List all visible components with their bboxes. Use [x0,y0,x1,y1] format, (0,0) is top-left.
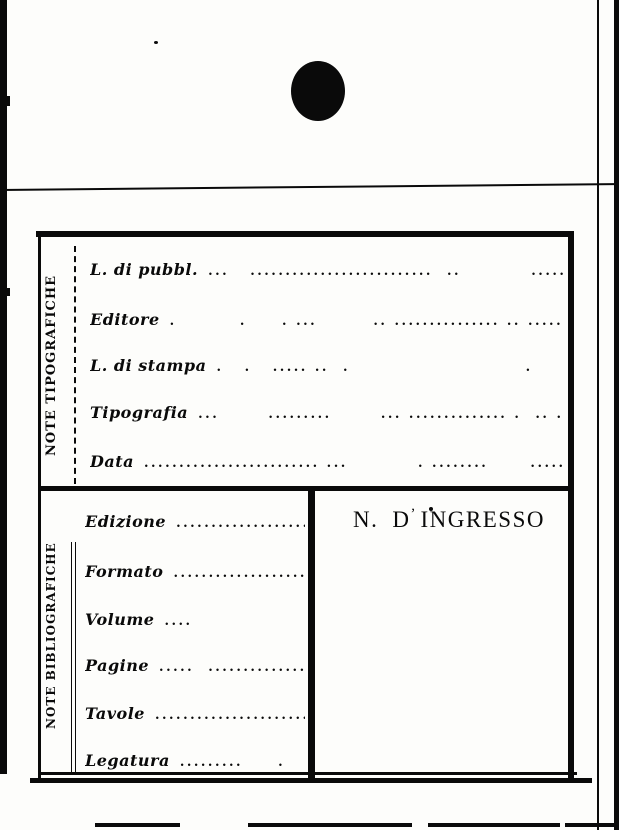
ingresso-box-title: N.D’INGRESSO [338,506,560,538]
dotted-fill-line: .................... [176,516,305,531]
field-row-formato: Formato ..................... [85,562,305,581]
title-separator-double [71,542,76,774]
card-border-bottom [30,778,592,783]
field-label: Edizione [85,512,166,531]
field-label: Tavole [85,704,145,723]
field-label: L. di pubbl. [90,260,198,279]
field-row-pagine: Pagine ..... .............. [85,656,305,675]
field-row-tavole: Tavole ....................... [85,704,305,723]
scan-noise-notch [6,288,10,296]
ingresso-word: INGRESSO [421,507,545,532]
section-title-tipografiche: NOTE TIPOGRAFICHE [44,248,68,482]
field-label: Legatura [85,751,170,770]
scan-edge-bottom-dash [428,823,560,827]
scan-noise-notch [6,96,10,106]
title-separator-dashed [74,246,76,484]
dotted-fill-line: ..................... [173,566,305,581]
field-label: Tipografia [90,403,188,422]
field-label: Editore [90,310,160,329]
dotted-fill-line: . . ..... .. . . [216,360,564,375]
field-label: L. di stampa [90,356,206,375]
card-fold-line [597,0,599,830]
field-row-luogo-stampa: L. di stampa . . ..... .. . . [90,356,564,375]
dotted-fill-line: ..... .............. [159,660,305,675]
dotted-fill-line: . . . ... .. ............... .. ...... [170,314,564,329]
horizontal-rule [0,183,619,191]
dotted-fill-line: ... .......................... .. ...... [208,264,564,279]
scan-edge-right-bar [614,0,619,830]
ingresso-d: D [392,507,410,532]
field-label: Volume [85,610,154,629]
column-divider-line [308,491,315,778]
field-row-tipografia: Tipografia ... ......... ... ...........… [90,403,564,422]
dotted-fill-line: ......... . ... [180,755,305,770]
dotted-fill-line: ... ......... ... .............. . .. ..… [198,407,564,422]
section-title-bibliografiche: NOTE BIBLIOGRAFICHE [44,498,68,774]
field-row-legatura: Legatura ......... . ... [85,751,305,770]
field-row-editore: Editore . . . ... .. ............... .. … [90,310,564,329]
field-label: Data [90,452,134,471]
scan-edge-bottom-dash [565,823,619,827]
field-row-edizione: Edizione .................... [85,512,305,531]
section-divider-line [41,486,568,491]
punch-hole [291,61,345,121]
field-row-volume: Volume .... . [85,610,305,629]
field-label: Pagine [85,656,149,675]
card-border-top [36,231,574,237]
scan-speck [154,41,158,44]
field-row-luogo-pubblicazione: L. di pubbl. ... .......................… [90,260,564,279]
card-border-left [38,231,41,779]
field-row-data: Data ......................... ... . ...… [90,452,564,471]
dotted-fill-line: .... . [164,614,305,629]
field-label: Formato [85,562,163,581]
dotted-fill-line: ......................... ... . ........… [144,456,564,471]
dotted-fill-line: ....................... [155,708,305,723]
scan-edge-bottom-dash [95,823,180,827]
card-border-right [568,231,574,783]
scan-edge-left-bar [0,0,7,774]
ingresso-apostrophe: ’ [411,506,416,522]
ingresso-n: N. [353,507,378,532]
scan-edge-bottom-dash [248,823,412,827]
